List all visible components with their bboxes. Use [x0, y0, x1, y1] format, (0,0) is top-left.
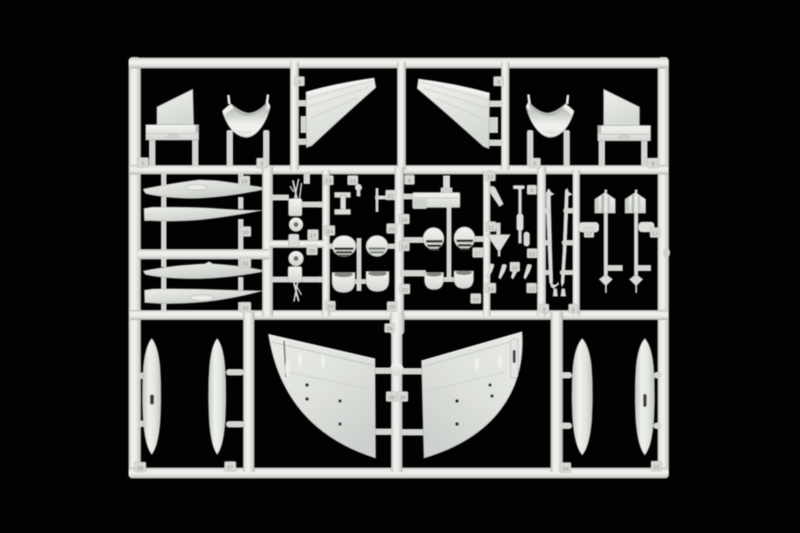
- svg-text:21: 21: [387, 194, 394, 200]
- svg-text:17: 17: [474, 252, 480, 258]
- svg-text:13: 13: [528, 287, 535, 293]
- svg-text:10: 10: [512, 266, 518, 272]
- svg-text:33: 33: [653, 465, 660, 471]
- svg-text:17: 17: [586, 232, 592, 238]
- svg-text:16: 16: [472, 298, 479, 304]
- svg-text:24: 24: [326, 230, 333, 236]
- svg-text:37: 37: [227, 466, 233, 472]
- svg-text:24: 24: [327, 305, 334, 311]
- svg-text:12: 12: [529, 252, 535, 258]
- svg-text:36: 36: [388, 396, 395, 402]
- svg-text:27: 27: [310, 234, 316, 240]
- svg-text:2: 2: [260, 162, 263, 168]
- svg-text:20: 20: [401, 288, 407, 294]
- svg-text:23: 23: [325, 179, 332, 185]
- svg-text:10: 10: [401, 218, 407, 224]
- svg-text:38: 38: [137, 466, 144, 472]
- svg-text:12: 12: [487, 175, 493, 181]
- svg-text:32: 32: [242, 306, 248, 312]
- svg-text:11: 11: [488, 226, 495, 232]
- svg-text:35: 35: [386, 327, 393, 333]
- svg-text:30: 30: [242, 231, 248, 237]
- svg-text:25: 25: [388, 228, 395, 234]
- svg-text:34: 34: [562, 467, 569, 473]
- svg-text:26: 26: [389, 305, 396, 311]
- svg-text:29: 29: [241, 180, 248, 186]
- svg-text:13: 13: [401, 245, 408, 251]
- svg-text:36: 36: [399, 396, 406, 402]
- svg-text:14: 14: [487, 287, 494, 293]
- svg-text:17: 17: [652, 232, 658, 238]
- svg-text:31: 31: [242, 262, 249, 268]
- svg-text:28: 28: [309, 249, 316, 255]
- svg-text:22: 22: [349, 179, 355, 185]
